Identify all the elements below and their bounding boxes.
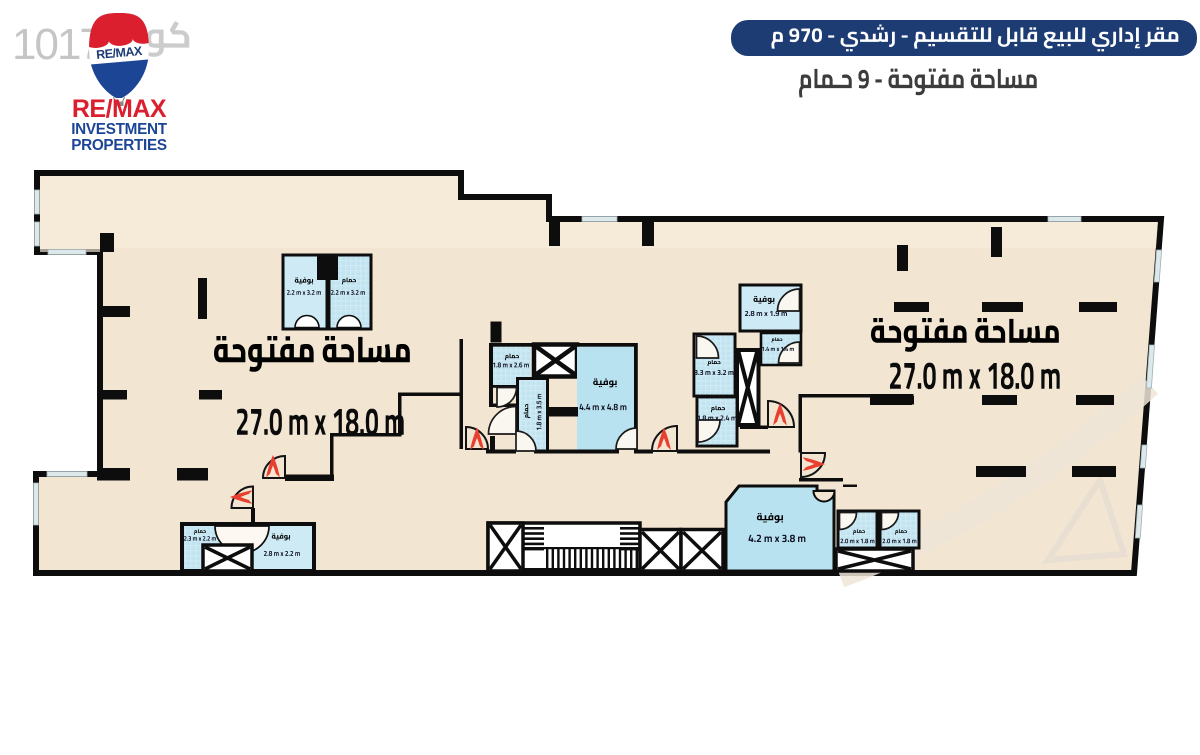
svg-text:PROPERTIES: PROPERTIES [71,137,167,154]
svg-text:1017: 1017 [12,20,102,69]
svg-text:RE/MAX: RE/MAX [72,95,167,123]
svg-text:INVESTMENT: INVESTMENT [71,121,168,138]
